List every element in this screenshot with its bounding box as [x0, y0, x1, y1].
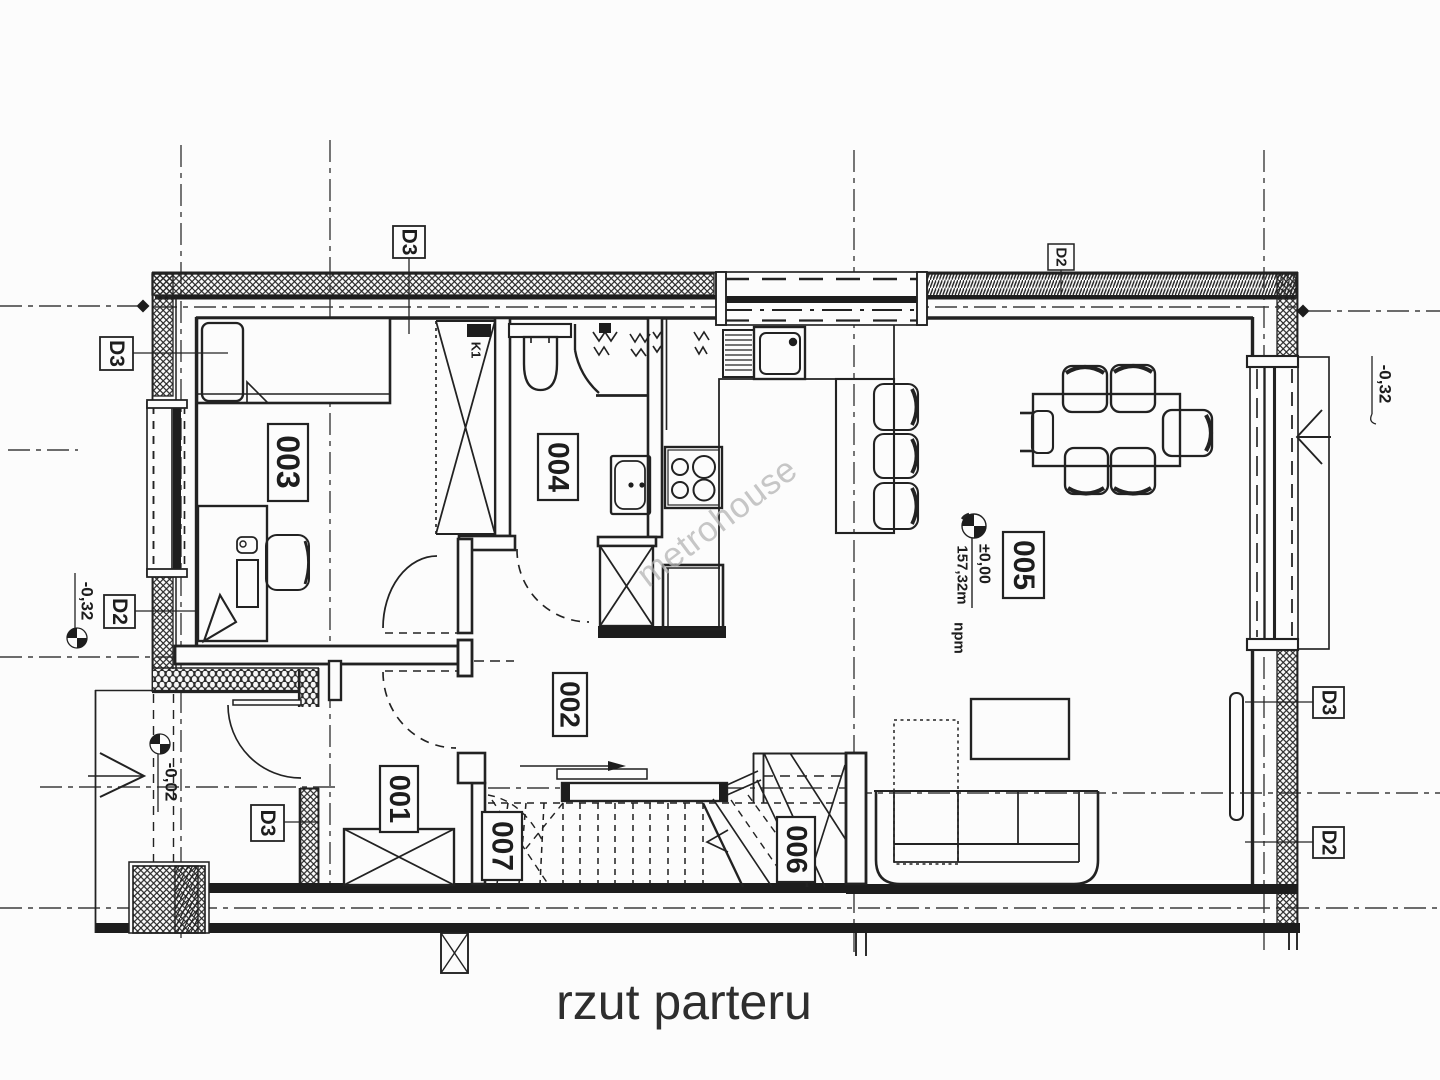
- svg-text:D3: D3: [105, 340, 128, 367]
- svg-text:006: 006: [780, 825, 812, 873]
- svg-text:D3: D3: [256, 810, 279, 837]
- svg-text:D2: D2: [1318, 830, 1340, 856]
- svg-text:D2: D2: [108, 598, 131, 625]
- svg-text:-0,32: -0,32: [1376, 365, 1395, 404]
- svg-text:157,32m: 157,32m: [954, 545, 971, 604]
- svg-text:-0,32: -0,32: [78, 582, 97, 621]
- svg-text:004: 004: [542, 442, 575, 492]
- svg-text:K1: K1: [469, 342, 484, 359]
- svg-text:007: 007: [486, 821, 519, 871]
- svg-text:003: 003: [270, 435, 306, 488]
- svg-text:005: 005: [1007, 540, 1040, 590]
- svg-text:D2: D2: [1053, 247, 1070, 266]
- svg-text:rzut parteru: rzut parteru: [556, 974, 812, 1030]
- svg-text:npm: npm: [951, 622, 968, 654]
- svg-text:002: 002: [555, 681, 586, 728]
- svg-text:D3: D3: [398, 229, 421, 256]
- svg-text:D3: D3: [1318, 690, 1340, 716]
- svg-text:001: 001: [383, 775, 415, 823]
- svg-text:±0,00: ±0,00: [976, 544, 993, 584]
- svg-text:-0,02: -0,02: [162, 763, 181, 802]
